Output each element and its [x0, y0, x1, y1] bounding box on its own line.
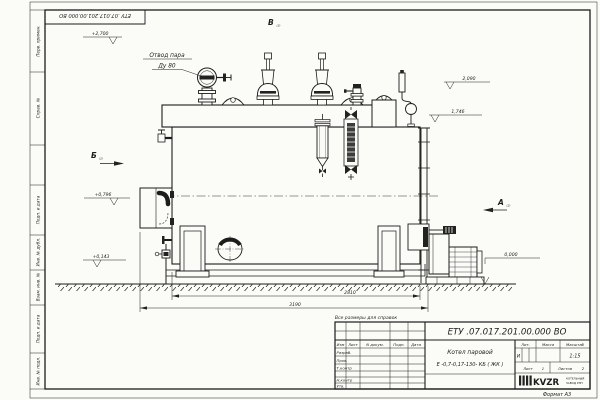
col-list: Лист [347, 342, 358, 347]
col-izm: Изм [337, 342, 345, 347]
margin-label-perv-primen: Перв. примен. [36, 25, 41, 56]
view-v-ref: (2) [277, 24, 281, 28]
margin-label-podp-data-2: Подп. и дата [36, 314, 41, 343]
sheets-label: Листов [557, 366, 573, 371]
row-nkontr: Н.контр [337, 378, 353, 383]
ground-line [55, 284, 516, 291]
view-a-ref: (2) [507, 204, 511, 208]
sheet-label: Лист [522, 366, 533, 371]
boiler-drawing-svg: Перв. примен. Справ. № Подп. и дата Инв.… [0, 0, 600, 400]
elev-2700: +2,700 [91, 31, 108, 37]
elev-0796: +0,796 [94, 192, 111, 198]
elev-0000: 0,000 [504, 252, 517, 258]
logo-sub2: ЗАВОД РЭП [566, 381, 583, 385]
row-razrab: Разраб. [337, 350, 352, 355]
reference-note: Все размеры для справок [335, 315, 398, 321]
scale-label: Масштаб [566, 342, 585, 347]
lit-label: Лит. [520, 342, 530, 347]
dim-3190: 3190 [289, 302, 301, 308]
margin-label-podp-data-1: Подп. и дата [36, 195, 41, 224]
lit-value: И [517, 354, 521, 360]
thermometer [399, 70, 405, 92]
col-podp: Подп. [393, 342, 405, 347]
corner-doc-number: ЕТУ .07.017.201.00.000 ВО [59, 12, 131, 18]
elev-2090: 2,090 [462, 76, 475, 82]
steam-outlet-text-2: Ду 80 [157, 64, 175, 70]
logo-sub1: КОТЕЛЬНЫЙ [566, 376, 584, 381]
support-leg-rear [374, 226, 404, 277]
format-label: Формат А3 [543, 392, 571, 398]
product-name-line2: Е -0,7-0,17-130- КБ ( ЖК ) [437, 362, 504, 368]
row-prov: Пров. [337, 358, 348, 363]
scale-value: 1:15 [569, 354, 580, 360]
product-name-line1: Котел паровой [447, 350, 493, 356]
support-leg-front [176, 226, 209, 277]
elev-0143: +0,143 [92, 254, 109, 260]
mass-label: Масса [542, 342, 555, 347]
view-a-letter: А [497, 198, 504, 207]
margin-label-sprav-no: Справ. № [36, 97, 41, 118]
col-docum: N докум. [366, 342, 384, 347]
view-b-letter: Б [91, 151, 97, 160]
margin-label-inv-podl: Инв. № подл. [36, 357, 41, 386]
dim-2810: 2810 [344, 290, 356, 296]
title-doc-number: ЕТУ .07.017.201.00.000 ВО [448, 328, 567, 338]
steam-outlet-text-1: Отвод пара [149, 53, 185, 59]
row-utv: Утв. [337, 384, 345, 389]
margin-label-inv-dubl: Инв. № дубл. [36, 238, 41, 267]
drawing-sheet: Перв. примен. Справ. № Подп. и дата Инв.… [0, 0, 600, 400]
burner-box [140, 188, 174, 228]
sheet-value: 1 [542, 366, 544, 371]
view-b-ref: (2) [99, 157, 103, 161]
control-box [372, 95, 396, 127]
elev-1746: 1,746 [451, 109, 464, 115]
margin-label-vzam-inv: Взам. инв. № [36, 272, 41, 301]
logo-text: KVZR [533, 378, 560, 388]
col-data: Дата [410, 342, 422, 347]
view-v-letter: В [268, 18, 274, 27]
row-tkontr: Т.контр [337, 366, 353, 371]
